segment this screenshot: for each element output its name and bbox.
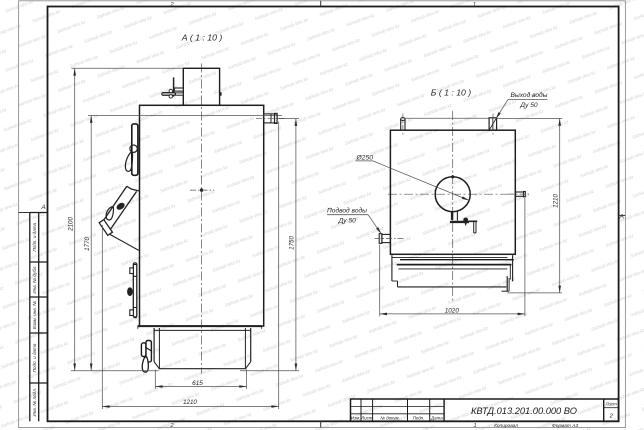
svg-text:Дата: Дата [430, 416, 443, 421]
svg-text:Подп.: Подп. [413, 416, 425, 421]
svg-text:Копировал: Копировал [494, 423, 518, 429]
svg-text:2100: 2100 [68, 217, 75, 232]
svg-text:Формат А3: Формат А3 [552, 423, 579, 429]
svg-text:Подп. и дата: Подп. и дата [32, 222, 37, 251]
svg-text:1770: 1770 [84, 237, 91, 251]
svg-text:А ( 1 : 10 ): А ( 1 : 10 ) [181, 33, 223, 43]
svg-text:Инв. № подл.: Инв. № подл. [32, 388, 37, 417]
svg-text:Ø250: Ø250 [355, 155, 373, 162]
svg-text:615: 615 [192, 380, 203, 387]
svg-text:1750: 1750 [289, 236, 296, 250]
svg-text:Инв. № дубл.: Инв. № дубл. [32, 265, 37, 293]
svg-text:1: 1 [473, 2, 476, 8]
svg-text:Лист: Лист [605, 402, 618, 407]
svg-text:Подп. и дата: Подп. и дата [32, 343, 37, 372]
svg-text:1020: 1020 [445, 307, 460, 314]
svg-text:А: А [619, 213, 624, 220]
svg-text:1210: 1210 [552, 194, 559, 208]
svg-text:1210: 1210 [183, 399, 197, 406]
svg-text:№ докум.: № докум. [380, 416, 399, 421]
svg-text:Подвод воды: Подвод воды [327, 206, 367, 214]
svg-text:Взам. инв. №: Взам. инв. № [32, 301, 37, 329]
svg-text:Изм.: Изм. [351, 416, 360, 421]
svg-text:А: А [40, 204, 45, 211]
svg-text:Ду 50: Ду 50 [338, 218, 357, 225]
svg-text:КВТД.013.201.00.000 ВО: КВТД.013.201.00.000 ВО [471, 406, 577, 416]
svg-text:Ду 50: Ду 50 [519, 102, 538, 109]
svg-text:Б ( 1 : 10 ): Б ( 1 : 10 ) [431, 88, 472, 98]
svg-text:1: 1 [473, 423, 476, 429]
svg-text:Выход воды: Выход воды [510, 91, 547, 99]
svg-text:Лист: Лист [360, 416, 373, 421]
